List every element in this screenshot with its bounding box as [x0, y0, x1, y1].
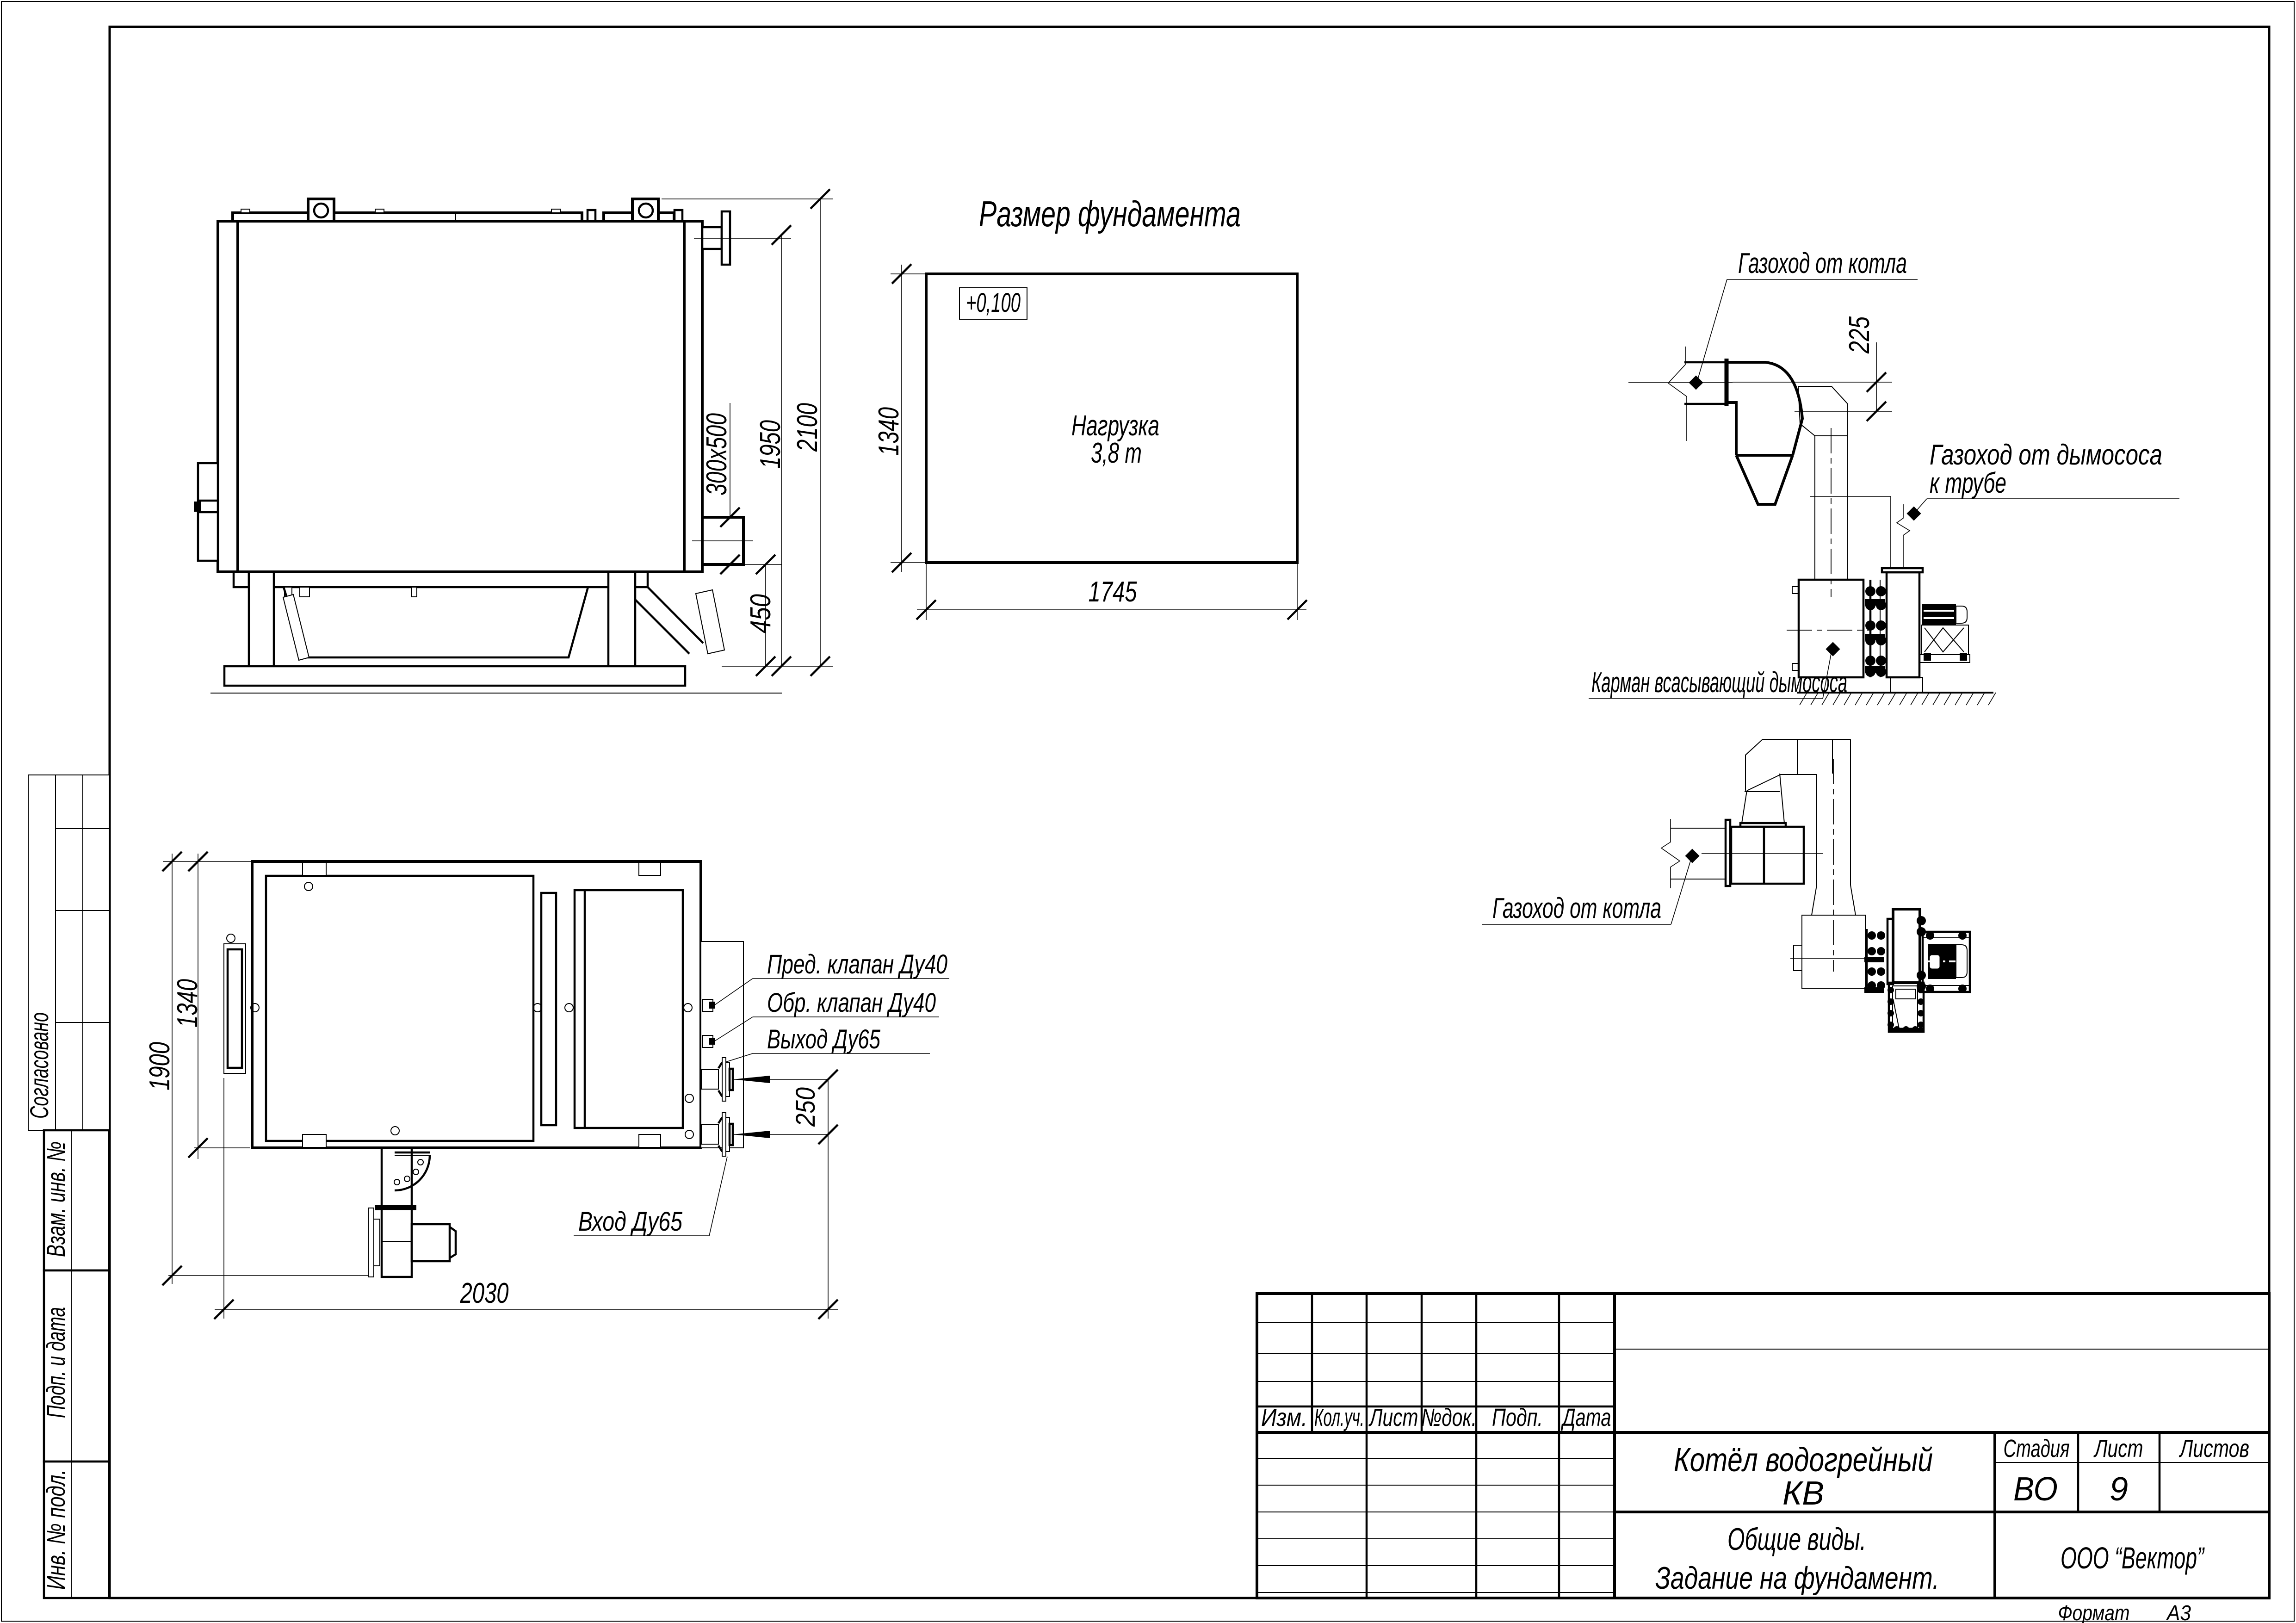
svg-text:9: 9	[2110, 1471, 2128, 1508]
svg-text:ООО “Вектор”: ООО “Вектор”	[2061, 1541, 2205, 1575]
svg-text:А3: А3	[2166, 1601, 2191, 1623]
svg-text:Вход Ду65: Вход Ду65	[578, 1207, 683, 1237]
svg-text:Пред. клапан Ду40: Пред. клапан Ду40	[767, 949, 947, 979]
svg-text:к трубе: к трубе	[1930, 467, 2006, 499]
svg-text:1900: 1900	[144, 1042, 176, 1090]
svg-text:Лист: Лист	[2093, 1435, 2143, 1462]
svg-text:Газоход от котла: Газоход от котла	[1738, 248, 1907, 279]
svg-text:Согласовано: Согласовано	[25, 1012, 54, 1119]
svg-text:2100: 2100	[792, 403, 823, 452]
svg-text:Взам. инв. №: Взам. инв. №	[41, 1141, 70, 1257]
svg-text:1340: 1340	[172, 979, 204, 1028]
svg-text:Инв. № подл.: Инв. № подл.	[41, 1469, 70, 1590]
svg-text:Стадия: Стадия	[2004, 1435, 2070, 1462]
svg-text:Задание на фундамент.: Задание на фундамент.	[1655, 1561, 1939, 1596]
svg-text:Котёл водогрейный: Котёл водогрейный	[1674, 1442, 1933, 1479]
svg-text:ВО: ВО	[2013, 1471, 2058, 1508]
svg-text:Подп.: Подп.	[1492, 1404, 1543, 1431]
svg-text:Обр. клапан Ду40: Обр. клапан Ду40	[767, 988, 936, 1018]
svg-text:Размер фундамента: Размер фундамента	[979, 193, 1241, 234]
svg-text:Газоход от котла: Газоход от котла	[1492, 892, 1661, 924]
svg-text:2030: 2030	[460, 1277, 509, 1309]
svg-text:225: 225	[1844, 316, 1875, 354]
svg-text:Карман всасывающий дымососа: Карман всасывающий дымососа	[1591, 667, 1847, 699]
svg-text:Газоход от дымососа: Газоход от дымососа	[1930, 439, 2162, 471]
svg-text:1950: 1950	[755, 420, 786, 469]
svg-text:3,8 т: 3,8 т	[1091, 437, 1142, 469]
svg-text:300х500: 300х500	[701, 413, 733, 496]
svg-text:КВ: КВ	[1782, 1475, 1824, 1512]
svg-text:Листов: Листов	[2179, 1435, 2249, 1462]
svg-text:250: 250	[791, 1087, 821, 1127]
svg-text:Кол.уч.: Кол.уч.	[1314, 1404, 1364, 1431]
svg-text:№док.: №док.	[1421, 1404, 1477, 1431]
svg-text:Подп. и дата: Подп. и дата	[41, 1307, 70, 1418]
svg-text:Общие виды.: Общие виды.	[1727, 1522, 1866, 1557]
svg-text:+0,100: +0,100	[966, 288, 1021, 318]
svg-text:Изм.: Изм.	[1261, 1404, 1307, 1431]
svg-text:Формат: Формат	[2058, 1601, 2130, 1623]
svg-text:450: 450	[745, 594, 777, 633]
svg-text:Выход Ду65: Выход Ду65	[767, 1024, 881, 1054]
svg-text:1745: 1745	[1089, 576, 1137, 608]
svg-text:Дата: Дата	[1561, 1404, 1611, 1431]
svg-text:1340: 1340	[873, 407, 905, 456]
svg-text:Лист: Лист	[1368, 1404, 1418, 1431]
